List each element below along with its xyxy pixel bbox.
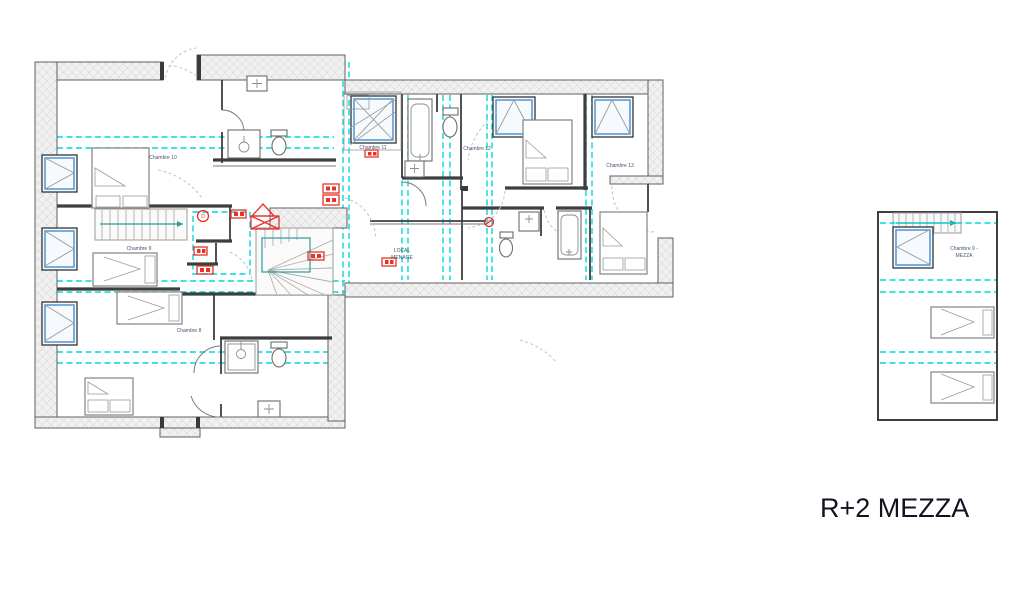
skylight-chambre13 (592, 97, 633, 137)
equipment-tag (323, 184, 339, 193)
sink-symbol-bath8 (258, 401, 280, 417)
bed-chambre8-single (117, 292, 182, 324)
skylight-chambre8 (42, 302, 77, 345)
stairs-central-winder (256, 228, 333, 295)
shower-symbol-bath8 (225, 341, 258, 373)
sink-symbol-top (247, 76, 267, 91)
skylight-chambre10 (42, 155, 77, 192)
toilet-symbol-bath11 (443, 108, 458, 137)
equipment-tag (194, 247, 207, 255)
equipment-tag (231, 210, 246, 218)
room-label-chambre-10: Chambre 10 (149, 155, 177, 161)
toilet-symbol-midbath (500, 232, 514, 257)
equipment-tag (197, 266, 213, 274)
bathtub-symbol-bath11 (408, 99, 432, 161)
equipment-tag (323, 195, 339, 205)
room-label-mezza-line2: MEZZA (956, 253, 974, 259)
toilet-symbol-bath8 (271, 342, 287, 367)
bed-chambre8-double (85, 378, 133, 415)
toilet-symbol-bath10 (271, 130, 287, 155)
bed-chambre10-double (92, 148, 149, 208)
bed-mezza-single-1 (931, 307, 994, 338)
room-label-local-menage-line2: MENAGE (391, 255, 413, 261)
floorplan-drawing: D Chambre 10 Chambre 9 Chambre 8 Chambre… (0, 0, 1024, 599)
room-label-mezza-line1: Chambre 9 - (950, 246, 978, 252)
room-label-local-menage-line1: LOCAL (394, 248, 411, 254)
skylight-chambre11 (351, 96, 396, 143)
bed-chambre12-double (523, 120, 572, 184)
equipment-tag (365, 150, 378, 157)
bathtub-symbol-midbath (558, 211, 581, 259)
room-label-chambre-9: Chambre 9 (127, 246, 152, 252)
vanity-symbol-bath10 (228, 130, 260, 158)
bed-chambre13-double (600, 212, 647, 274)
door-marker-label: D (201, 214, 205, 220)
bed-mezza-single-2 (931, 372, 994, 403)
bed-chambre9-single (93, 253, 157, 286)
sink-symbol-midbath (519, 212, 539, 231)
plan-title: R+2 MEZZA (820, 493, 969, 523)
floorplan-page: D Chambre 10 Chambre 9 Chambre 8 Chambre… (0, 0, 1024, 599)
room-label-chambre-12: Chambre 12 (463, 146, 491, 152)
skylight-chambre9 (42, 228, 77, 270)
room-label-chambre-8: Chambre 8 (177, 328, 202, 334)
room-label-chambre-13: Chambre 13 (606, 163, 634, 169)
stairs-chambre9 (95, 209, 187, 240)
room-label-chambre-11: Chambre 11 (359, 145, 386, 151)
mezzanine-plan: Chambre 9 - MEZZA (878, 212, 997, 420)
skylight-mezza (893, 227, 933, 268)
door-swings (158, 48, 655, 362)
sink-symbol-bath11 (405, 161, 424, 177)
